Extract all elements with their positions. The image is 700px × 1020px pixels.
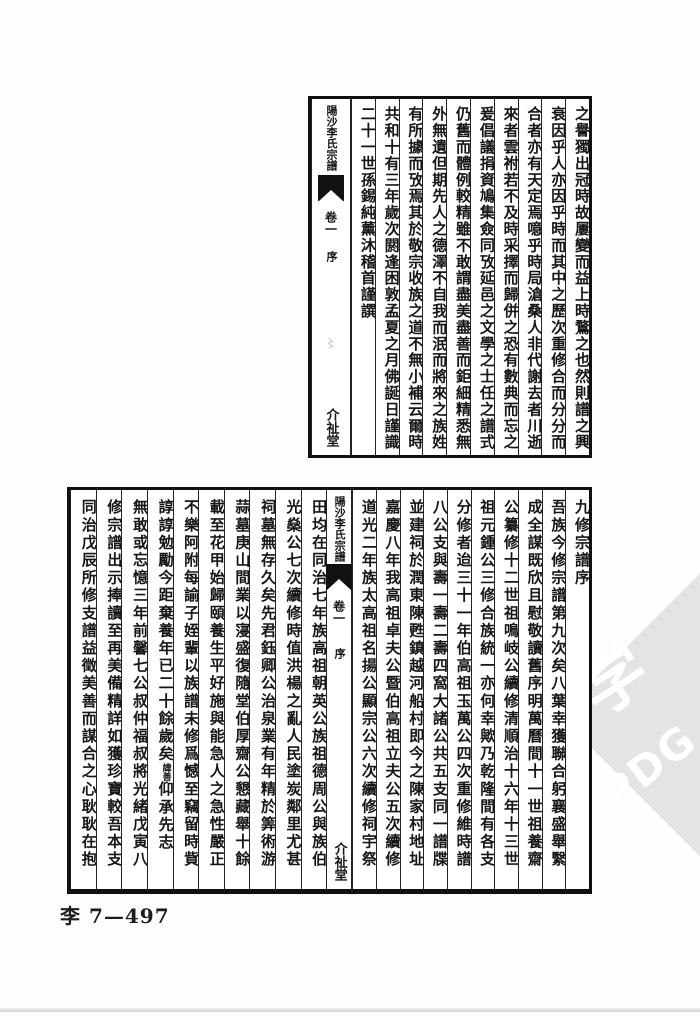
text-column: 光燊公七次續修時值洪楊之亂人民塗炭鄰里尤甚 [275,490,301,889]
text-column: 衰因乎人亦因乎時而其中之歷次重修合而分分而 [541,99,565,455]
text-column: 來者雲祔若不及時采擇而歸併之恐有數典而忘之 [494,99,518,455]
text-column: 有所據而攷焉其於敬宗收族之道不無小補云爾時 [399,99,423,455]
column-text: 仰承先志 [157,781,173,851]
text-column: 田均在同治七年族高祖朝英公族祖德周公與族伯 [301,490,327,889]
banxin-title: 陽沙李氏宗譜 [323,105,339,171]
text-column: 蒜墓庚山間業以寖盛復隨堂伯厚齋公懇藏舉十餘 [224,490,250,889]
shelf-number-label: 李 7—497 [60,900,170,929]
fishtail-ornament [318,175,344,201]
section-title-column: 九修宗譜序 [565,490,589,889]
text-column-with-note: 諄諄勉勵今距棄養年已二十餘歲矣諱善仰承先志 [147,490,173,889]
text-column: 無敢或忘憶三年前馨七公叔仲福叔將光緒戊寅八 [121,490,147,889]
section-label: 序 [331,648,347,659]
top-page-frame: 之譽獨出冠時故屢變而益上時鶩之也然則譜之興 衰因乎人亦因乎時而其中之歷次重修合而… [308,96,592,458]
text-column-signature: 二十一世孫錫純薰沐稽首謹譔 [351,99,375,455]
text-column: 共和十有三年歲次閼逢困敦孟夏之月佛誕日謹識 [375,99,399,455]
text-column: 修宗譜出示捧讀至再美備精詳如獲珍寶較吾本支 [96,490,122,889]
banxin-strip: 陽沙李氏宗譜 卷一 序 〻 介祉堂 [311,99,351,455]
volume-label: 卷一 [331,600,348,624]
banxin-title: 陽沙李氏宗譜 [331,496,347,562]
text-column: 嘉慶八年我高祖卓夫公暨伯高祖立夫公五次續修 [376,490,400,889]
text-column: 爰倡議捐資鳩集僉同攷延邑之文學之士任之譜式 [470,99,494,455]
bottom-page-frame: 九修宗譜序 吾族今修宗譜第九次矣八葉幸獲聯合躬襄盛舉繄 成全謀既欣且慰敬讀舊序明… [67,487,592,894]
text-column: 道光二年族太高祖名揚公顯宗公六次續修祠宇祭 [352,490,376,889]
text-column: 之譽獨出冠時故屢變而益上時鶩之也然則譜之興 [565,99,589,455]
text-column: 合者亦有天定焉噫乎時局滄桑人非代謝去者川逝 [518,99,542,455]
text-column: 仍舊而體例較精雖不敢謂盡美盡善而鉅細精悉無 [446,99,470,455]
fishtail-ornament [326,564,352,590]
volume-label: 卷一 [323,211,340,235]
text-column: 載至花甲始歸頤養生平好施與能急人之急性嚴正 [198,490,224,889]
banxin-strip: 陽沙李氏宗譜 卷一 序 介祉堂 [326,490,352,889]
text-column: 不樂阿附每諭子姪輩以族譜未修爲憾至竊留時貲 [173,490,199,889]
genealogy-scan-page: { "page": { "shelf_label": "李 7—497", "w… [0,0,700,1020]
text-column: 外無遺但期先人之德澤不自我而泯而將來之族姓 [422,99,446,455]
text-column: 公纂修十二世祖鳴岐公續修清順治十六年十三世 [494,490,518,889]
text-column: 分修者迨三十一年伯高祖玉萬公四次重修維時譜 [447,490,471,889]
hall-name-label: 介祉堂 [330,842,349,881]
scan-edge-artifact [0,1008,700,1012]
text-column: 成全謀既欣且慰敬讀舊序明萬曆間十一世祖養齋 [518,490,542,889]
text-column: 同治戊辰所修支譜益徵美善而謀合之心耿耿在抱 [70,490,96,889]
hall-name-label: 介祉堂 [322,408,341,447]
text-column: 並建祠於潤東陳甦鎮越河船村即今之陳家村地址 [400,490,424,889]
interlinear-note: 諱善 [161,763,171,781]
text-column: 八公支與壽一壽二壽四窩大諸公共五支同一譜牒 [423,490,447,889]
column-text: 諄諄勉勵今距棄養年已二十餘歲矣 [157,499,173,763]
text-column: 祖元鍾公三修合族統一亦何幸歟乃乾隆間有各支 [471,490,495,889]
pencil-smudge: 〻 [323,337,340,349]
text-column: 祠墓無存久矣先君鈺卿公治泉業有年精於筭術游 [249,490,275,889]
section-label: 序 [323,251,339,262]
text-column: 吾族今修宗譜第九次矣八葉幸獲聯合躬襄盛舉繄 [542,490,566,889]
